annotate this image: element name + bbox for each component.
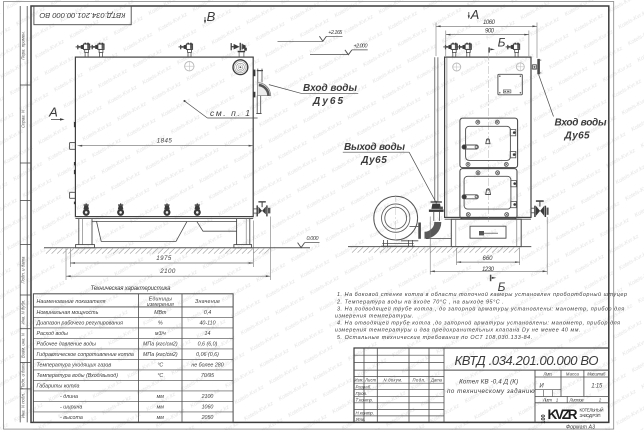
svg-text:Выход воды: Выход воды xyxy=(344,142,405,153)
svg-text:Подп. и дата: Подп. и дата xyxy=(20,256,25,284)
svg-text:40-110: 40-110 xyxy=(199,321,215,327)
svg-text:Ду65: Ду65 xyxy=(564,130,590,141)
svg-text:Пров.: Пров. xyxy=(356,391,368,396)
svg-text:Инв. N дубл.: Инв. N дубл. xyxy=(20,300,25,325)
svg-text:1: 1 xyxy=(556,398,558,403)
svg-text:N докум.: N докум. xyxy=(384,378,403,383)
svg-text:1060: 1060 xyxy=(202,405,214,411)
svg-text:Ду65: Ду65 xyxy=(360,155,387,166)
svg-text:900: 900 xyxy=(485,29,495,35)
svg-text:Справ. N: Справ. N xyxy=(20,109,25,128)
svg-text:Температура воды (Вход/выход): Температура воды (Вход/выход) xyxy=(37,373,119,379)
svg-text:1975: 1975 xyxy=(156,255,172,262)
svg-text:Рабочее давление воды: Рабочее давление воды xyxy=(37,342,96,348)
svg-text:Гидравлическое сопротивление к: Гидравлическое сопротивление котла xyxy=(37,352,134,358)
svg-text:мм: мм xyxy=(157,415,165,421)
svg-text:А: А xyxy=(48,105,58,120)
svg-text:0,4: 0,4 xyxy=(204,310,211,316)
svg-text:Подп.: Подп. xyxy=(413,378,426,383)
svg-text:МВт: МВт xyxy=(154,310,167,316)
svg-text:И: И xyxy=(539,383,544,389)
svg-text:2. Температура воды на входе: 2. Температура воды на входе 70°С , на в… xyxy=(336,299,504,305)
svg-text:Дата: Дата xyxy=(430,378,443,383)
svg-text:не более 280: не более 280 xyxy=(191,363,223,369)
svg-text:измерения: измерения xyxy=(147,302,174,308)
svg-text:Лист: Лист xyxy=(542,398,553,403)
svg-text:Номинальная мощность: Номинальная мощность xyxy=(37,310,99,316)
svg-text:МПа (кгс/см2): МПа (кгс/см2) xyxy=(143,352,178,358)
svg-text:Т.контр.: Т.контр. xyxy=(356,398,374,403)
svg-text:Значение: Значение xyxy=(195,299,220,305)
svg-text:Габариты котла: Габариты котла xyxy=(37,384,80,390)
svg-text:м3/ч: м3/ч xyxy=(155,331,166,337)
svg-text:мм: мм xyxy=(157,394,165,400)
svg-text:Диапазон рабочего регулировани: Диапазон рабочего регулирования xyxy=(36,321,124,327)
svg-text:Н.контр.: Н.контр. xyxy=(356,411,375,416)
svg-text:Разраб.: Разраб. xyxy=(356,384,372,389)
svg-text:Лит.: Лит. xyxy=(543,371,553,376)
svg-text:Перв. примен.: Перв. примен. xyxy=(20,31,25,60)
svg-text:А: А xyxy=(470,7,480,22)
svg-text:0.000: 0.000 xyxy=(307,236,319,242)
svg-text:Вход воды: Вход воды xyxy=(303,83,357,94)
svg-text:2100: 2100 xyxy=(159,268,176,275)
svg-text:Температура уходящих газов: Температура уходящих газов xyxy=(37,363,112,369)
svg-text:2100: 2100 xyxy=(201,394,214,400)
svg-text:660: 660 xyxy=(483,256,494,262)
svg-text:МПа (кгс/см2): МПа (кгс/см2) xyxy=(143,342,178,348)
svg-text:Котел КВ -0,4 Д (К): Котел КВ -0,4 Д (К) xyxy=(459,378,518,385)
svg-text:Расход воды: Расход воды xyxy=(37,331,68,337)
svg-text:Лист: Лист xyxy=(364,378,377,383)
svg-text:Б: Б xyxy=(498,35,506,49)
svg-text:14: 14 xyxy=(205,331,211,337)
svg-text:Листов: Листов xyxy=(569,398,585,403)
svg-text:+2.165: +2.165 xyxy=(328,30,343,36)
svg-text:5. Остальные технические треб: 5. Остальные технические требования по О… xyxy=(337,335,533,341)
svg-text:Формат А3: Формат А3 xyxy=(566,424,595,430)
svg-text:Наименование показателя: Наименование показателя xyxy=(37,299,106,305)
svg-text:+2.000: +2.000 xyxy=(354,44,368,50)
svg-text:%: % xyxy=(158,321,163,327)
svg-text:1. На боковой стенке котла в: 1. На боковой стенке котла в области топ… xyxy=(337,291,628,298)
svg-text:1230: 1230 xyxy=(482,267,495,273)
svg-text:3. На подводящей трубе котла: 3. На подводящей трубе котла , до запорн… xyxy=(337,306,625,313)
svg-text:Масса: Масса xyxy=(566,371,580,376)
svg-text:КВТД .034.201.00.000 ВО: КВТД .034.201.00.000 ВО xyxy=(455,353,599,368)
svg-text:0,6 (6,0): 0,6 (6,0) xyxy=(198,342,218,348)
svg-text:измерения температуры и два пр: измерения температуры и два предохраните… xyxy=(335,328,581,334)
svg-text:Подп. и дата: Подп. и дата xyxy=(20,362,25,390)
svg-text:0,06 (0,6): 0,06 (0,6) xyxy=(196,352,219,358)
svg-text:Инв. N подл.: Инв. N подл. xyxy=(20,393,25,418)
svg-text:100: 100 xyxy=(541,414,547,423)
svg-text:мм: мм xyxy=(157,405,165,411)
svg-text:- ширина: - ширина xyxy=(60,405,82,411)
svg-text:Изм.: Изм. xyxy=(355,378,364,383)
svg-text:В: В xyxy=(207,9,216,24)
svg-text:- высота: - высота xyxy=(60,415,83,421)
svg-text:1845: 1845 xyxy=(157,138,173,145)
svg-text:КВТД.034.201.00.000 ВО: КВТД.034.201.00.000 ВО xyxy=(39,11,125,20)
svg-text:°С: °С xyxy=(157,373,163,379)
svg-text:1:15: 1:15 xyxy=(591,384,603,390)
svg-text:4. На отводящей трубе котла ,: 4. На отводящей трубе котла ,до запорной… xyxy=(337,320,621,327)
svg-text:1060: 1060 xyxy=(483,20,496,26)
svg-text:Вход воды: Вход воды xyxy=(555,117,607,128)
svg-text:°С: °С xyxy=(157,363,163,369)
svg-text:Масштаб: Масштаб xyxy=(587,371,606,376)
svg-text:ЗАВОД РЭП: ЗАВОД РЭП xyxy=(580,413,601,418)
svg-text:КОТЕЛЬНЫЙ: КОТЕЛЬНЫЙ xyxy=(580,408,604,413)
svg-text:Ду65: Ду65 xyxy=(312,96,343,107)
svg-text:Техническая характеристика: Техническая характеристика xyxy=(91,286,172,292)
svg-text:по техническому заданию: по техническому заданию xyxy=(447,388,535,395)
svg-text:2050: 2050 xyxy=(201,415,214,421)
svg-text:- длина: - длина xyxy=(60,394,78,400)
svg-text:KVZR: KVZR xyxy=(548,407,578,422)
svg-text:70/95: 70/95 xyxy=(201,373,214,379)
svg-text:Взам. инв. N: Взам. инв. N xyxy=(20,332,25,358)
svg-text:измерения температуры.: измерения температуры. xyxy=(335,314,414,320)
svg-text:Утв.: Утв. xyxy=(356,417,366,422)
